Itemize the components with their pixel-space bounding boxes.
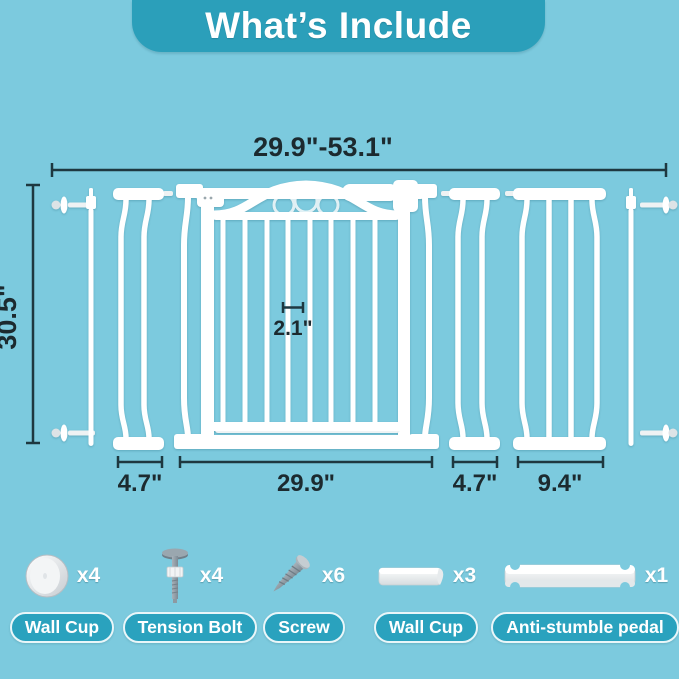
- page-title: What’s Include: [205, 5, 472, 47]
- bar-gap-dimension: 2.1": [273, 302, 312, 340]
- wall-cup-round-icon: [24, 553, 70, 599]
- extension-left-label: 4.7": [118, 470, 163, 497]
- wall-cup-channel-icon: [376, 561, 446, 591]
- part-name: Wall Cup: [25, 617, 99, 637]
- part-label-pill: Wall Cup: [374, 612, 478, 643]
- extension-right-4-7: [441, 188, 500, 450]
- part-name: Tension Bolt: [138, 617, 243, 637]
- part-name: Anti-stumble pedal: [506, 617, 664, 637]
- tension-bolt-bottom-right-icon: [640, 425, 678, 442]
- tension-bolt-icon: [157, 547, 193, 605]
- extension-left-4-7: [113, 188, 173, 450]
- part-name: Screw: [278, 617, 330, 637]
- gate-width-label: 29.9": [277, 470, 335, 497]
- anti-stumble-pedal-icon: [502, 556, 638, 596]
- part-anti-stumble-pedal: x1 Anti-stumble pedal: [498, 546, 672, 646]
- bottom-dimensions: 4.7" 29.9" 4.7" 9.4": [118, 456, 603, 497]
- gate-diagram: 29.9"-53.1" 30.5": [0, 105, 679, 545]
- height-label: 30.5": [0, 284, 22, 349]
- tension-bolt-top-right-icon: [640, 197, 678, 214]
- extension-right-9-4: [505, 188, 606, 450]
- part-count: x4: [77, 564, 100, 588]
- pressure-rod-right: [626, 188, 636, 446]
- total-width-label: 29.9"-53.1": [253, 132, 393, 162]
- bar-gap-label: 2.1": [273, 317, 312, 340]
- part-count: x3: [453, 564, 476, 588]
- part-wall-cup-round: x4 Wall Cup: [8, 546, 116, 646]
- part-tension-bolt: x4 Tension Bolt: [138, 546, 242, 646]
- header-banner: What’s Include: [132, 0, 545, 52]
- part-label-pill: Anti-stumble pedal: [491, 612, 679, 643]
- pressure-rod-left: [86, 188, 96, 446]
- screw-icon: [263, 551, 315, 601]
- part-wall-cup-channel: x3 Wall Cup: [378, 546, 474, 646]
- part-count: x1: [645, 564, 668, 588]
- height-dimension: 30.5": [0, 185, 40, 443]
- part-count: x6: [322, 564, 345, 588]
- part-label-pill: Screw: [263, 612, 345, 643]
- extension-right-large-label: 9.4": [538, 470, 583, 497]
- part-name: Wall Cup: [389, 617, 463, 637]
- part-label-pill: Wall Cup: [10, 612, 114, 643]
- main-gate: [174, 180, 439, 449]
- tension-bolt-bottom-left-icon: [52, 425, 96, 442]
- total-width-dimension: 29.9"-53.1": [52, 132, 666, 177]
- part-label-pill: Tension Bolt: [123, 612, 258, 643]
- part-count: x4: [200, 564, 223, 588]
- part-screw: x6 Screw: [260, 546, 348, 646]
- extension-right-small-label: 4.7": [453, 470, 498, 497]
